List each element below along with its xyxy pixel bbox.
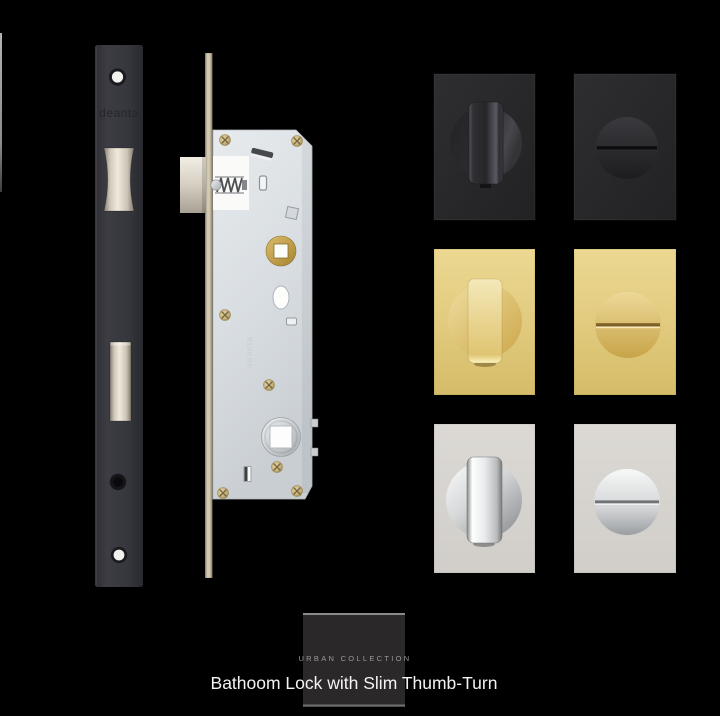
case-brand-text: deanta <box>244 336 254 368</box>
escutcheon-tile-brass-front <box>434 249 535 395</box>
case-tab <box>311 419 318 427</box>
deadbolt <box>110 342 131 421</box>
escutcheon-tile-chrome-front <box>434 424 535 573</box>
escutcheon-tile-black-back <box>574 74 676 220</box>
escutcheon-tile-chrome-back <box>574 424 676 573</box>
latch-bolt <box>104 148 134 211</box>
product-illustration: deanta <box>0 0 720 716</box>
square-emboss <box>285 206 298 219</box>
coin-slot <box>597 146 657 149</box>
screw-hole <box>109 68 126 85</box>
spindle-follower <box>262 418 301 457</box>
brass-follower <box>266 236 296 266</box>
product-image: deanta <box>0 0 720 716</box>
badge-top-rule <box>303 613 405 615</box>
faceplate-brand-text: deanta <box>99 106 139 120</box>
case-slot <box>287 318 297 325</box>
coin-slot <box>595 500 659 503</box>
spindle-hole <box>110 474 126 490</box>
keyhole-slot <box>244 467 251 482</box>
left-edge-artifact <box>0 33 2 192</box>
case-slot <box>260 176 267 190</box>
screw-hole <box>111 547 127 563</box>
thumb-turn-grip <box>467 457 502 543</box>
coin-slot <box>596 323 660 326</box>
faceplate-edge-highlight <box>96 46 97 587</box>
forend-strip <box>205 53 213 578</box>
thumb-turn-grip <box>469 102 503 184</box>
oval-cutout <box>273 286 289 309</box>
latch-block <box>180 157 206 213</box>
escutcheon-tile-black-front <box>434 74 535 220</box>
coin-slot-highlight <box>595 503 659 504</box>
escutcheon-tile-brass-back <box>574 249 676 395</box>
faceplate-body <box>95 45 143 587</box>
product-caption: Bathoom Lock with Slim Thumb-Turn <box>211 673 498 693</box>
coin-slot-highlight <box>596 327 660 329</box>
badge-bottom-rule <box>303 705 405 707</box>
mortice-faceplate: deanta <box>95 45 143 587</box>
thumb-turn-grip <box>468 279 502 363</box>
badge-label: URBAN COLLECTION <box>298 654 411 663</box>
case-right-shading <box>302 133 312 493</box>
case-tab <box>311 448 318 456</box>
